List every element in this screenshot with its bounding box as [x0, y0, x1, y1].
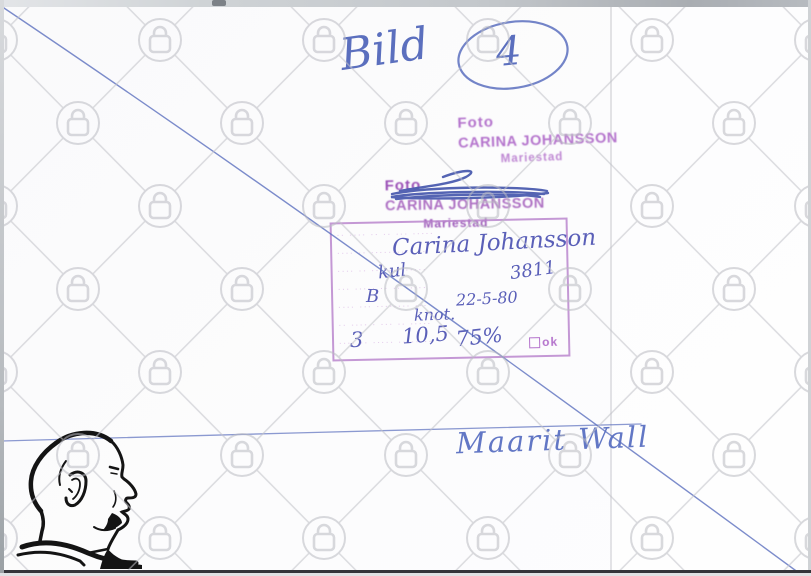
fold-crease-line	[610, 0, 612, 576]
scanned-photo-back: Foto CARINA JOHANSSON Mariestad Foto CAR…	[0, 0, 811, 576]
handwritten-number: 4	[494, 31, 523, 73]
photographer-stamp: Foto CARINA JOHANSSON Mariestad	[457, 109, 618, 167]
handwritten-percent: 75%	[455, 325, 504, 351]
handwritten-size: 10,5	[401, 323, 449, 347]
handwritten-letter: B	[366, 288, 379, 306]
handwritten-date: 22-5-80	[456, 289, 518, 308]
stamp-line: Foto	[385, 175, 545, 195]
handwritten-label: kul	[377, 262, 407, 283]
stamp-line: CARINA JOHANSSON	[385, 196, 545, 215]
scan-left-edge	[0, 0, 4, 576]
form-ok-label: ok	[542, 335, 558, 349]
checkbox-icon	[529, 337, 540, 348]
handwritten-signature: Maarit Wall	[456, 423, 650, 459]
scan-top-edge	[0, 0, 811, 7]
scan-edge-smudge	[212, 0, 226, 6]
form-ok-field: ok	[529, 335, 558, 350]
stamp-line: CARINA JOHANSSON	[458, 130, 618, 152]
handwritten-note: knot.	[414, 306, 456, 323]
handwritten-count: 3	[350, 330, 363, 351]
card-right-panel	[612, 7, 808, 570]
handwritten-bild-note: Bild	[337, 22, 431, 78]
